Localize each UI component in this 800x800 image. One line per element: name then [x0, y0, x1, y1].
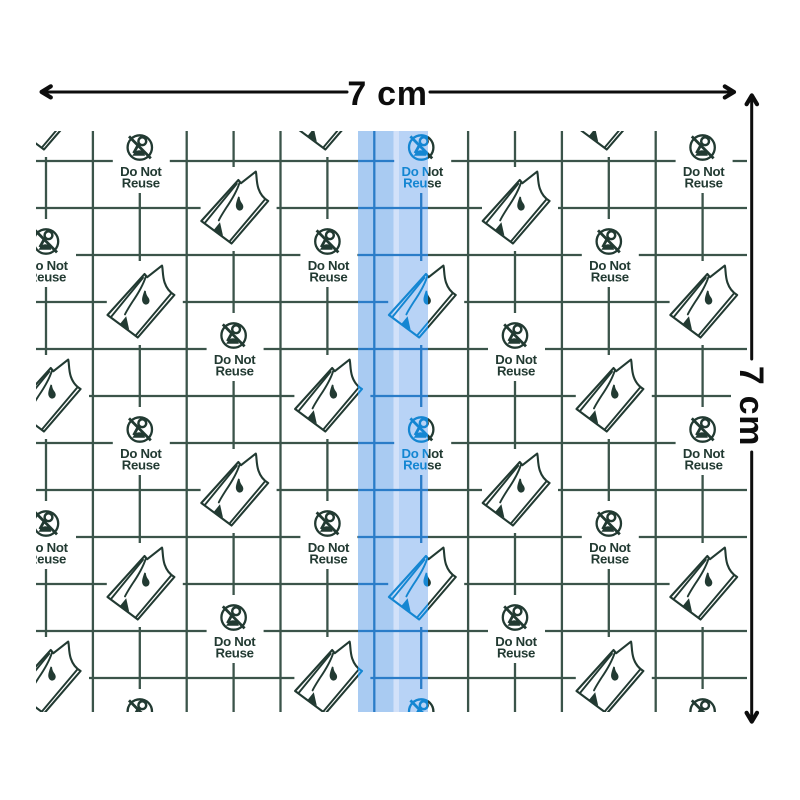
svg-text:7 cm: 7 cm [347, 75, 427, 113]
svg-text:7 cm: 7 cm [732, 366, 770, 446]
